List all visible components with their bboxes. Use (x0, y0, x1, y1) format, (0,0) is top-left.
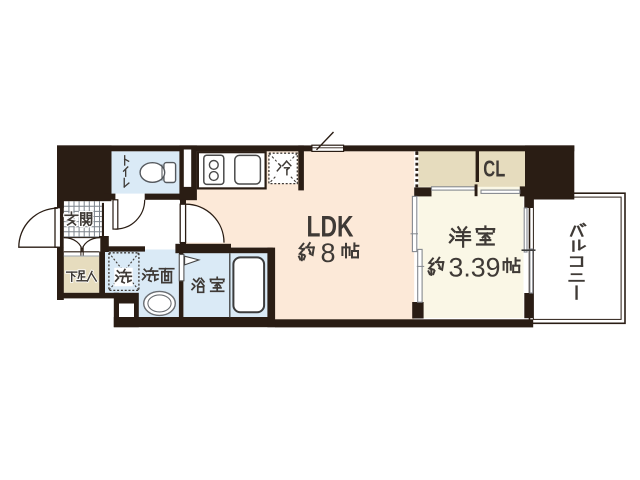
svg-text:CL: CL (483, 156, 505, 182)
svg-text:3.39: 3.39 (449, 253, 501, 283)
svg-text:8: 8 (320, 238, 335, 268)
